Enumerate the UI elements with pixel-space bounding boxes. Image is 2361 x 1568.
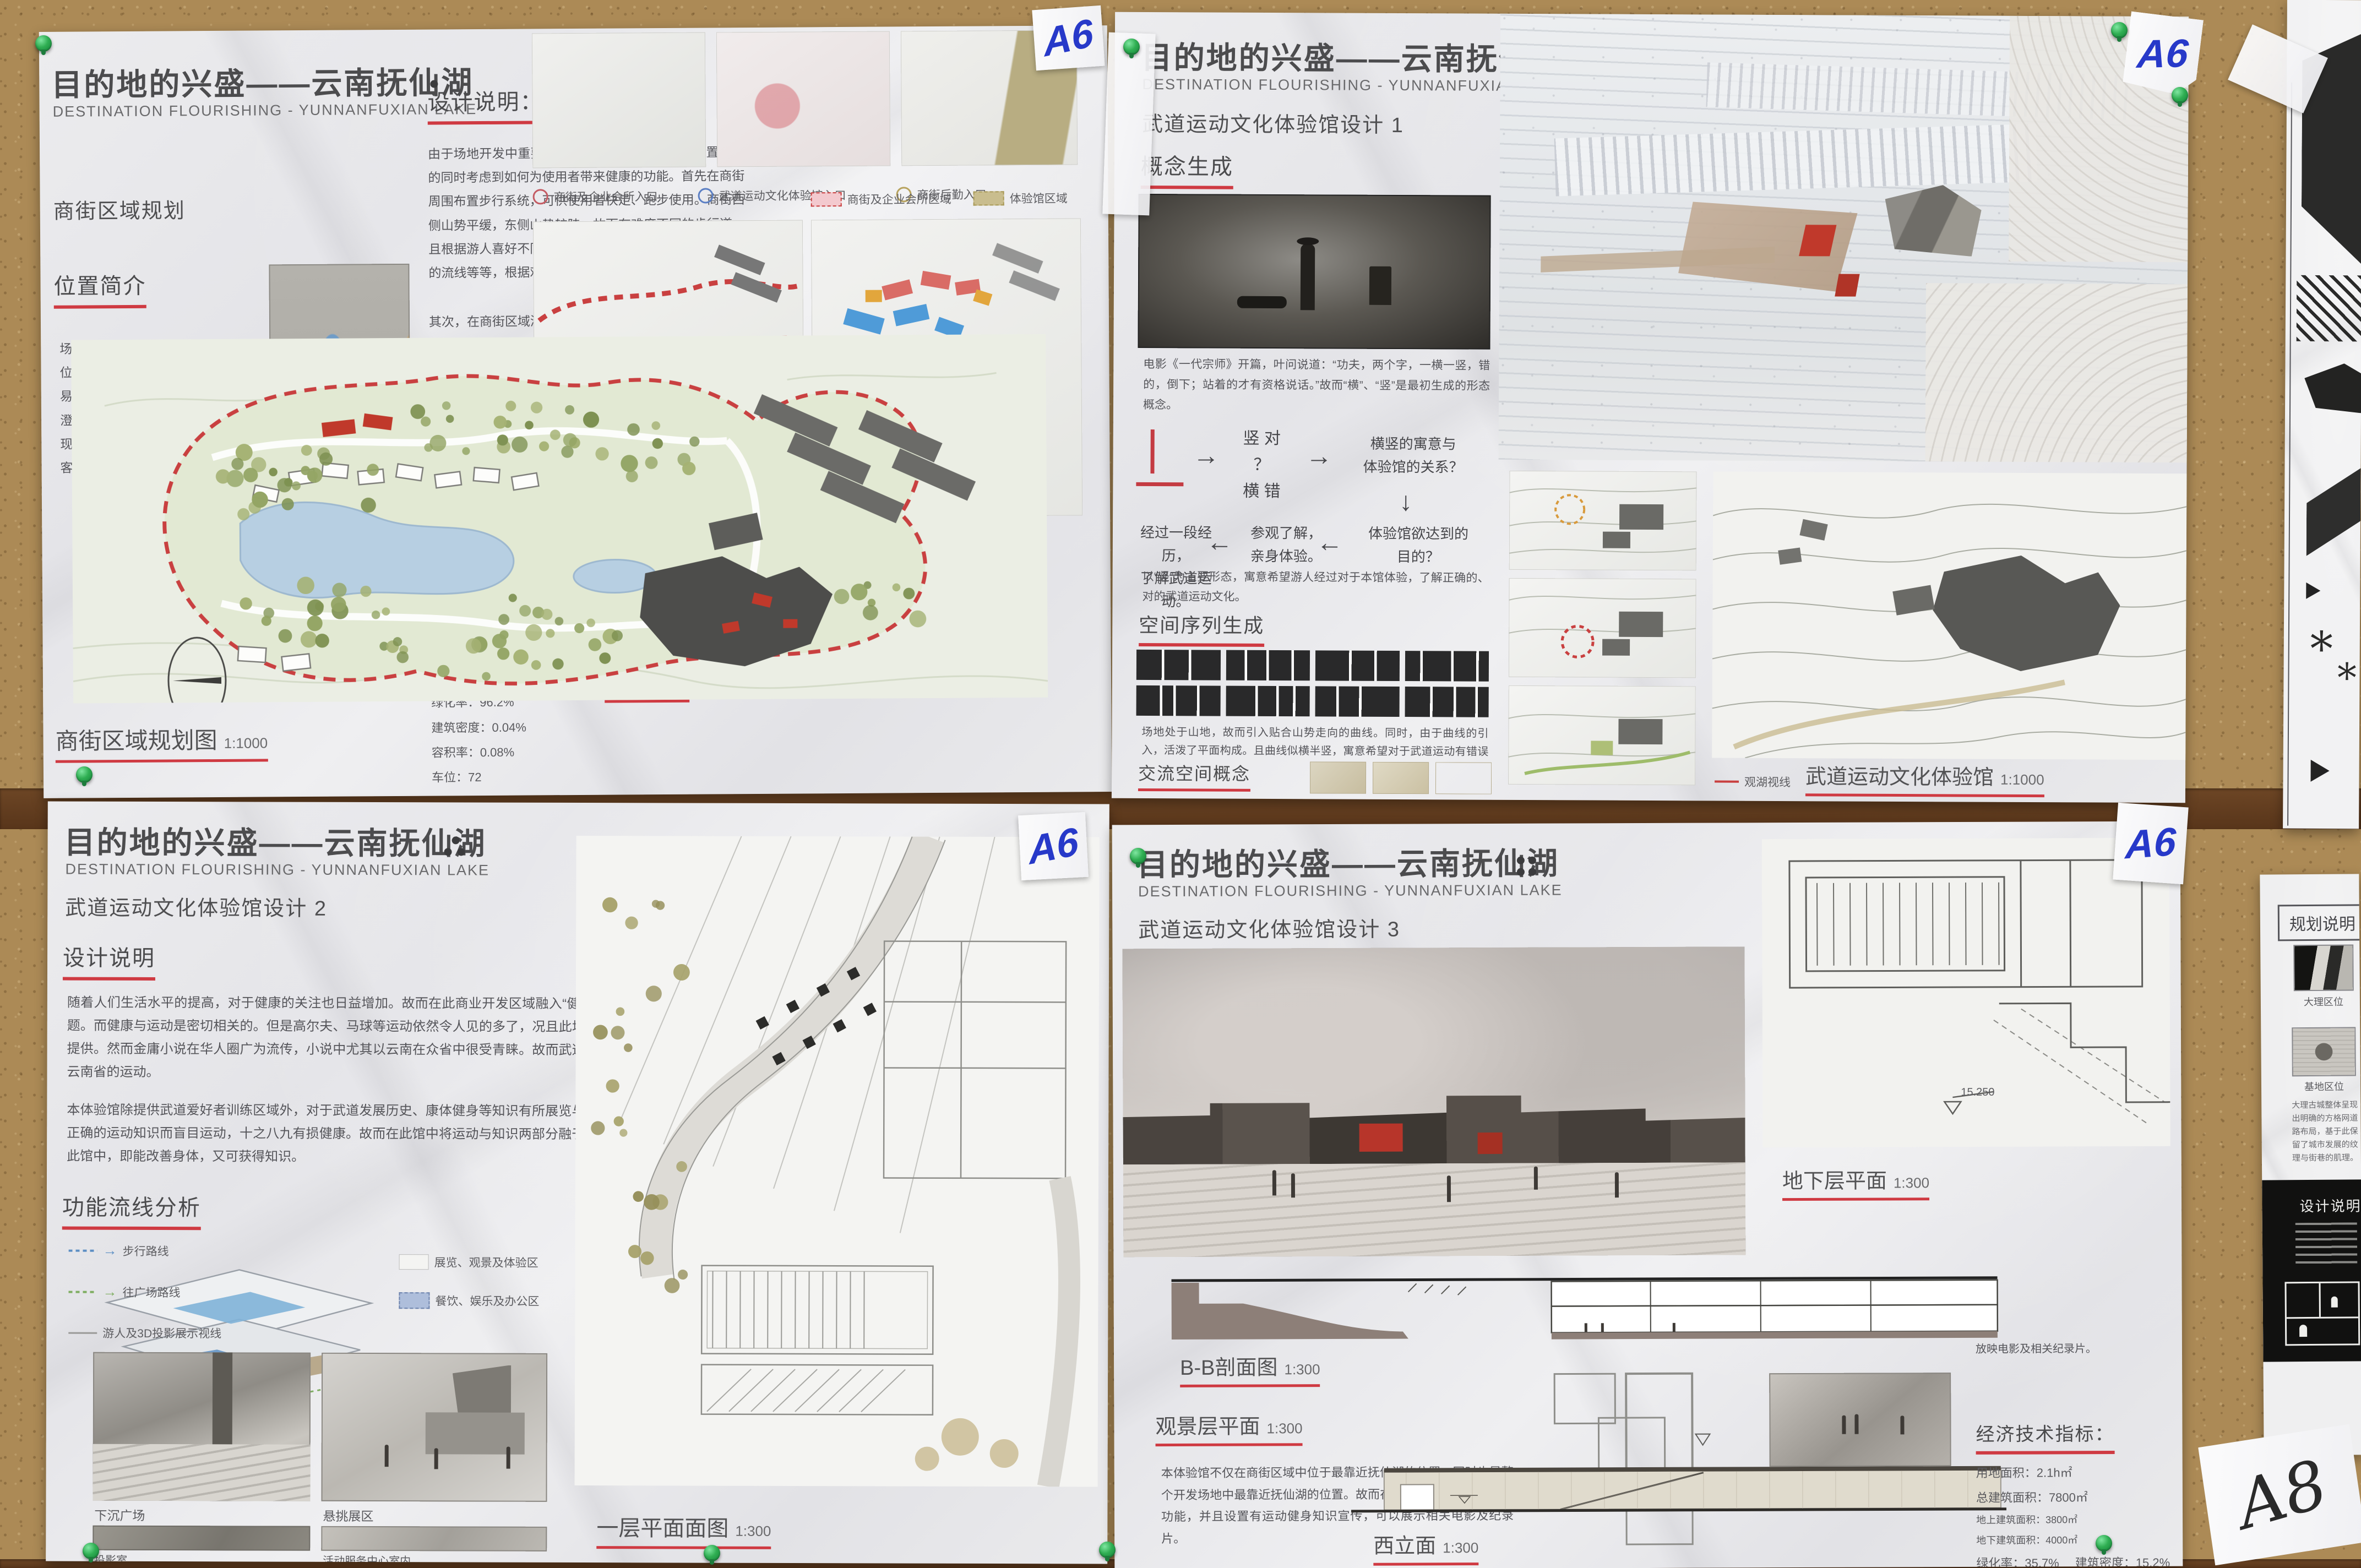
handwritten-a6: A6: [2125, 819, 2177, 868]
handwritten-a6: A6: [1026, 819, 1080, 874]
sequence-tile: [1405, 651, 1489, 682]
dark-building-cluster: [1885, 185, 1982, 257]
intro-paragraph: 大理古城整体呈现出明确的方格网道路布局，基于此保留了城市发展的纹理与街巷的肌理。: [2292, 1098, 2358, 1170]
aerial-rendering-image: [1499, 14, 2189, 462]
section-heading-econ: 经济技术指标：: [1976, 1419, 2114, 1455]
tan-swatch: [973, 191, 1004, 205]
econ-item: 地下建筑面积：4000㎡: [1976, 1530, 2077, 1551]
poster-bottom-right-sections: 目的地的兴盛——云南抚仙湖 DESTINATION FLOURISHING - …: [1112, 821, 2183, 1568]
sheet-subtitle: 武道运动文化体验馆设计 1: [1142, 107, 1404, 138]
sequence-tile: [1405, 687, 1489, 717]
page-title: 目的地的兴盛——云南抚仙湖: [51, 58, 474, 105]
legend-zone-2: 体验馆区域: [973, 190, 1068, 207]
page-title-en: DESTINATION FLOURISHING - YUNNANFUXIAN L…: [53, 101, 477, 121]
blue-zone-swatch: [399, 1292, 429, 1309]
model-thumb: [1310, 761, 1366, 793]
render-photo-projection-room: [93, 1526, 310, 1551]
sequence-text: 场地处于山地，故而引入贴合山势走向的曲线。同时，由于曲线的引入，活泼了平面构成。…: [1141, 723, 1488, 764]
movie-still-image: [1138, 194, 1490, 350]
terraced-fields: [1925, 283, 2188, 462]
sheet-subtitle: 商街区域规划: [53, 193, 186, 224]
site-diagram-2: [1509, 578, 1696, 678]
arrow-right-icon: →: [1193, 440, 1219, 471]
corkboard: 目的地的兴盛——云南抚仙湖 DESTINATION FLOURISHING - …: [0, 0, 2361, 1568]
sequence-tile: [1315, 650, 1400, 681]
black-bar-graphic: [2306, 468, 2361, 557]
poster-right-bottom-partial: 规划说明 大理区位 基地区位 大理古城整体呈现出明确的方格网道路布局，基于此保留…: [2260, 874, 2361, 1455]
photo-caption: 下沉广场: [94, 1505, 145, 1524]
first-floor-plan-label: 一层平面面图1:300: [596, 1510, 771, 1549]
section-b-b-drawing: [1166, 1268, 2003, 1342]
communication-model-thumbs: [1310, 761, 1492, 794]
poster-right-top-partial: 🞵 🞵: [2283, 0, 2361, 829]
red-line-swatch: [1715, 781, 1739, 783]
poster-top-left-master-plan: 目的地的兴盛——云南抚仙湖 DESTINATION FLOURISHING - …: [39, 25, 1112, 798]
vertical-rule: [2287, 83, 2292, 826]
section-heading-design: 设计说明：: [427, 84, 543, 124]
tree-glyph: 🞵: [2309, 617, 2334, 669]
sheet-dots: [1517, 857, 1536, 876]
econ-item: 总建筑面积：7800㎡: [1976, 1485, 2088, 1510]
red-accent-wall: [1478, 1133, 1503, 1154]
triangle-marker: [2311, 760, 2330, 782]
sequence-tile: [1136, 650, 1221, 680]
west-elevation-drawing: [1351, 1461, 2006, 1521]
sequence-tile: [1315, 686, 1400, 717]
plaza-foreground: [1123, 1162, 1746, 1257]
econ-item: 车位：72: [432, 764, 586, 790]
movie-caption: 电影《一代宗师》开篇，叶问说道：“功夫，两个字，一横一竖，错的，倒下；站着的才有…: [1143, 355, 1490, 422]
pushpin: [76, 766, 93, 783]
sequence-tile: [1226, 686, 1310, 717]
blue-arrow-swatch: [69, 1249, 97, 1251]
flow-node-goal: 体验馆欲达到的 目的？: [1350, 522, 1487, 569]
econ-item: 容积率：0.08%: [432, 739, 586, 765]
hatch-stripes: [2297, 275, 2361, 342]
sequence-tile: [1136, 685, 1221, 716]
concept-flow-diagram: → 竖 对？横 错 → 横竖的寓意与 体验馆的关系？ ↓ 体验馆欲达到的 目的？…: [1135, 425, 1493, 570]
green-arrow-swatch: [68, 1291, 97, 1293]
contour-site-plan: [1712, 472, 2186, 760]
legend-entry-1: 商街及企业会所入口: [533, 188, 658, 205]
flow-node-shu-dui: 竖 对？横 错: [1226, 426, 1298, 505]
tape-label-a6-top-middle: A6: [1032, 6, 1105, 70]
sheet-subtitle: 武道运动文化体验馆设计 2: [65, 891, 327, 922]
thumb-caption: 大理区位: [2304, 994, 2343, 1009]
flow-node-visit: 参观了解， 亲身体验。: [1239, 522, 1333, 568]
gray-line-swatch: [68, 1332, 97, 1333]
master-plan-drawing: [71, 334, 1048, 704]
econ-item: 地上建筑面积：3800㎡: [1976, 1510, 2072, 1531]
model-thumb: [1435, 762, 1492, 794]
handwritten-a6: A6: [1041, 10, 1096, 66]
page-title-en: DESTINATION FLOURISHING - YUNNANFUXIAN L…: [65, 861, 489, 879]
econ-item: 建筑密度：15.2%: [2075, 1550, 2170, 1568]
tape-label-a8-bottom-right: A8: [2197, 1424, 2361, 1566]
vertical-stroke-glyph: [1150, 429, 1154, 473]
pink-dashed-swatch: [811, 192, 842, 206]
arrow-right-icon: →: [1305, 441, 1332, 471]
page-title: 目的地的兴盛——云南抚仙湖: [1137, 839, 1559, 885]
legend-walk-route: → 步行路线: [69, 1242, 169, 1259]
econ-item: 用地面积：2.1h㎡: [1976, 1460, 2072, 1485]
sheet-dots: [444, 836, 467, 856]
pushpin: [35, 35, 52, 52]
pushpin: [704, 1545, 720, 1561]
tape-label-a6-top-right: A6: [2122, 11, 2204, 96]
black-band: 设计说明: [2262, 1179, 2361, 1362]
basement-plan-label: 地下层平面1:300: [1782, 1163, 1929, 1201]
white-swatch: [399, 1254, 429, 1270]
exterior-rendering-image: [1122, 946, 1745, 1257]
section-heading-sequence: 空间序列生成: [1139, 609, 1264, 647]
legend-plaza-route: → 往广场路线: [68, 1283, 180, 1301]
section-heading-design: 设计说明: [63, 940, 155, 981]
tree-glyph: 🞵: [2336, 650, 2357, 694]
photo-caption: 悬挑展区: [323, 1506, 373, 1525]
pushpin: [2096, 1535, 2112, 1551]
tape-label-a6-bottom-right: A6: [2113, 803, 2188, 885]
band-heading: 设计说明: [2299, 1195, 2361, 1216]
note-text: 放映电影及相关纪录片。: [1976, 1339, 2157, 1367]
arrow-glyph: →: [103, 1242, 117, 1259]
location-thumb-gray: [2293, 1028, 2355, 1075]
poster-bottom-left-plan: 目的地的兴盛——云南抚仙湖 DESTINATION FLOURISHING - …: [46, 801, 1109, 1564]
arrow-glyph: →: [102, 1283, 117, 1300]
section-b-b-label: B-B剖面图1:300: [1180, 1350, 1320, 1387]
legend-projection-sight: 游人及3D投影展示视线: [68, 1325, 221, 1342]
sequence-tile: [1226, 650, 1310, 681]
basement-level-value: 15.250: [1961, 1086, 1994, 1099]
pushpin: [2111, 22, 2128, 39]
handwritten-a8: A8: [2228, 1446, 2336, 1544]
pushpin: [1130, 848, 1146, 864]
blue-circle-icon: [698, 188, 714, 203]
section-heading-circulation: 功能流线分析: [62, 1190, 201, 1231]
analysis-diagram: [716, 31, 890, 167]
communication-text: 重点的交流空间，人们轻松愉悦交流，不同位置的交流空间供不同人群使用，交流武道运动…: [1138, 794, 1490, 796]
pushpin: [1099, 1542, 1116, 1558]
location-thumb-dark: [2294, 945, 2353, 990]
page-title: 目的地的兴盛——云南抚仙湖: [64, 818, 487, 864]
legend-zone-exhibit: 展览、观景及体验区: [399, 1254, 538, 1271]
basement-plan-drawing: [1762, 838, 2170, 1148]
experience-hall-plan-label: 武道运动文化体验馆1:1000: [1805, 759, 2044, 797]
black-axon-graphic: [2304, 363, 2361, 413]
model-thumb: [1373, 762, 1429, 794]
econ-item: 建筑密度：0.04%: [431, 714, 585, 740]
tape-corner-blank: [1102, 32, 1155, 216]
site-diagram-3: [1508, 685, 1696, 785]
thumb-caption: 基地区位: [2304, 1079, 2344, 1094]
west-elevation-label: 西立面1:300: [1373, 1528, 1478, 1566]
flow-node-meaning: 横竖的寓意与 体验馆的关系？: [1341, 433, 1484, 479]
poster-top-right-concept: 目的地的兴盛——云南抚仙湖 DESTINATION FLOURISHING - …: [1112, 12, 2189, 803]
page-title-en: DESTINATION FLOURISHING - YUNNANFUXIAN L…: [1138, 882, 1563, 901]
section-heading-location: 位置简介: [53, 268, 146, 309]
view-level-plan-fragment: [1532, 1368, 1715, 1550]
band-text-lines: [2295, 1222, 2358, 1267]
site-diagram-1: [1509, 471, 1697, 570]
econ-indicator-list: 用地面积：2.1h㎡ 总建筑面积：7800㎡ 地上建筑面积：3800㎡ 地下建筑…: [1976, 1460, 2175, 1568]
first-floor-plan-drawing: [575, 836, 1100, 1487]
triangle-marker: [2306, 582, 2320, 599]
arrow-down-icon: ↓: [1399, 487, 1412, 517]
plan-header-box: 规划说明: [2278, 904, 2361, 941]
sequence-tile-grid: [1136, 650, 1489, 717]
legend-lake-view: 观湖视线: [1715, 774, 1791, 791]
handwritten-a6: A6: [2135, 31, 2190, 77]
render-photo-sunken-plaza: [93, 1352, 311, 1501]
analysis-diagram: [532, 32, 706, 168]
render-photo-cantilever: [321, 1353, 547, 1502]
master-plan-label: 商街区域规划图1:1000: [55, 721, 268, 763]
legend-zone-dining: 餐饮、娱乐及办公区: [399, 1292, 539, 1309]
red-circle-icon: [533, 189, 548, 204]
tape-label-a6-bottom-middle: A6: [1018, 812, 1089, 880]
horizontal-stroke-glyph: [1136, 482, 1183, 486]
village-band: [1554, 123, 2038, 196]
pushpin: [2172, 87, 2188, 104]
section-heading-concept: 概念生成: [1141, 149, 1233, 189]
pushpin: [1123, 39, 1140, 55]
econ-item: 绿化率：35.7%: [1976, 1550, 2072, 1568]
pushpin: [83, 1543, 99, 1559]
sheet-subtitle: 武道运动文化体验馆设计 3: [1138, 912, 1400, 944]
red-accent-building: [1835, 274, 1859, 296]
legend-zone-1: 商街及企业会所区域: [811, 190, 951, 208]
white-section-drawing: [2284, 1281, 2360, 1346]
flow-note: 以“竖”为主要形态，寓意希望游人经过对于本馆体验，了解正确的、对的武道运动文化。: [1142, 567, 1489, 612]
red-accent-wall: [1359, 1124, 1403, 1152]
render-photo-service-center: [321, 1526, 547, 1551]
section-heading-communication: 交流空间概念: [1138, 760, 1250, 792]
view-level-plan-label: 观景层平面1:300: [1155, 1409, 1302, 1446]
interior-thumb-image: [1769, 1373, 1951, 1467]
